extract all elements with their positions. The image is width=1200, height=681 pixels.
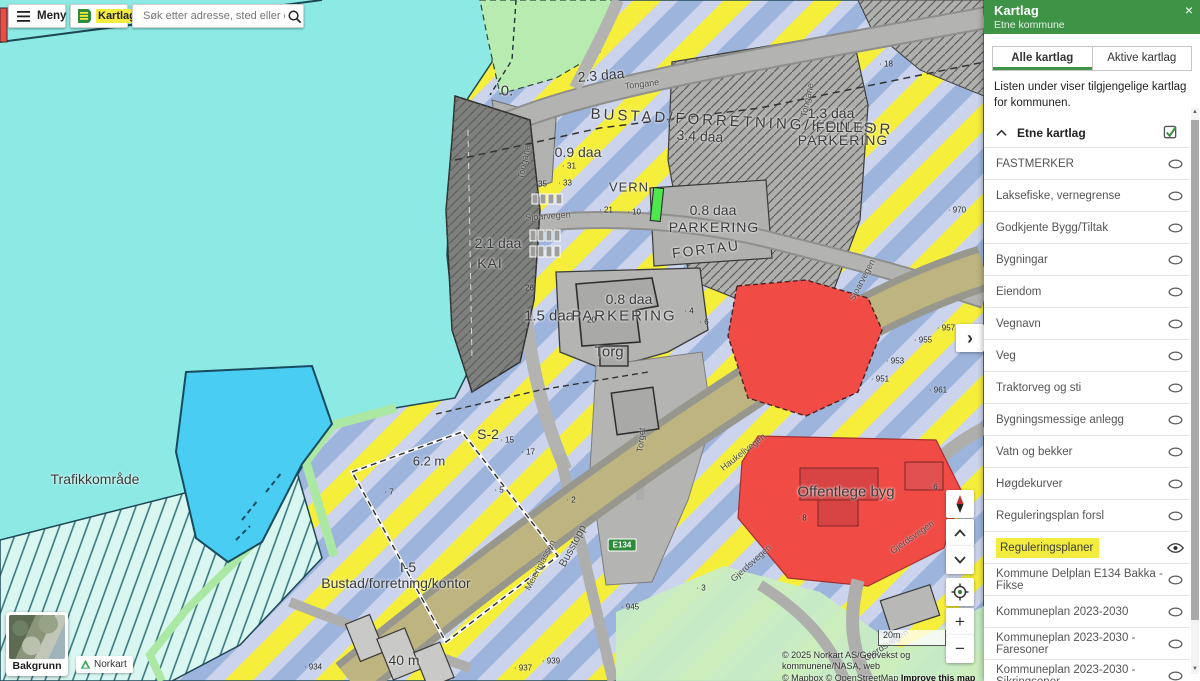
layer-row[interactable]: Kommune Delplan E134 Bakka - Fikse	[984, 563, 1190, 595]
layer-label: Godkjente Bygg/Tiltak	[996, 222, 1108, 234]
pan-down-button[interactable]	[946, 546, 974, 574]
layer-row[interactable]: Eiendom	[984, 275, 1190, 307]
panel-tabs: Alle kartlag Aktive kartlag	[992, 46, 1192, 71]
layer-row[interactable]: FASTMERKER	[984, 147, 1190, 179]
layer-label: Reguleringsplan forsl	[996, 510, 1104, 522]
group-checkbox-icon[interactable]	[1163, 125, 1178, 140]
kartlag-panel: Kartlag Etne kommune × Alle kartlag Akti…	[984, 0, 1200, 681]
layer-label: Høgdekurver	[996, 478, 1062, 490]
layer-label: Bygningsmessige anlegg	[996, 414, 1124, 426]
eye-toggle-icon[interactable]	[1167, 542, 1184, 554]
layer-row[interactable]: Laksefiske, vernegrense	[984, 179, 1190, 211]
layer-label: Kommune Delplan E134 Bakka - Fikse	[996, 568, 1167, 592]
hamburger-icon	[17, 11, 30, 22]
map-svg	[0, 0, 984, 681]
chevron-down-icon	[954, 556, 966, 564]
layer-label: Reguleringsplaner	[996, 538, 1099, 558]
menu-label: Meny	[37, 10, 66, 22]
layer-row[interactable]: Vegnavn	[984, 307, 1190, 339]
improve-map-link[interactable]: Improve this map	[901, 673, 976, 681]
layer-label: Kommuneplan 2023-2030	[996, 606, 1128, 618]
layer-row[interactable]: Godkjente Bygg/Tiltak	[984, 211, 1190, 243]
layer-label: FASTMERKER	[996, 158, 1074, 170]
layer-row[interactable]: Høgdekurver	[984, 467, 1190, 499]
norkart-attribution-chip[interactable]: Norkart	[76, 656, 133, 673]
eye-toggle-icon[interactable]	[1167, 222, 1184, 234]
panel-header: Kartlag Etne kommune ×	[984, 0, 1200, 34]
eye-toggle-icon[interactable]	[1167, 190, 1184, 202]
map-attribution: © 2025 Norkart AS/Geovekst og kommunene/…	[782, 650, 982, 681]
eye-toggle-icon[interactable]	[1167, 574, 1184, 586]
scale-label: 20m	[883, 630, 901, 640]
background-label: Bakgrunn	[6, 660, 68, 672]
eye-toggle-icon[interactable]	[1167, 638, 1184, 650]
search-box[interactable]	[132, 4, 304, 28]
layer-list: FASTMERKER Laksefiske, vernegrense	[984, 147, 1190, 681]
map-canvas[interactable]: 0.2.3 daa0.9 daaBUSTAD/FORRETNING/KONTOR…	[0, 0, 984, 681]
attribution-line1: © 2025 Norkart AS/Geovekst og kommunene/…	[782, 650, 910, 671]
eye-toggle-icon[interactable]	[1167, 350, 1184, 362]
eye-toggle-icon[interactable]	[1167, 382, 1184, 394]
zoom-in-button[interactable]: +	[946, 608, 974, 636]
layer-label: Bygningar	[996, 254, 1048, 266]
eye-toggle-icon[interactable]	[1167, 510, 1184, 522]
attribution-line2: © Mapbox © OpenStreetMap	[782, 673, 901, 681]
layer-label: Vatn og bekker	[996, 446, 1073, 458]
background-thumbnail	[9, 615, 65, 659]
layer-label: Veg	[996, 350, 1016, 362]
layer-row[interactable]: Reguleringsplan forsl	[984, 499, 1190, 531]
layer-label: Eiendom	[996, 286, 1041, 298]
panel-scrollbar-thumb[interactable]	[1191, 120, 1199, 620]
panel-tab[interactable]: Aktive kartlag	[1092, 47, 1192, 70]
layer-row[interactable]: Kommuneplan 2023-2030	[984, 595, 1190, 627]
norkart-logo-icon	[76, 8, 92, 24]
chevron-up-icon	[954, 529, 966, 537]
panel-title: Kartlag	[994, 3, 1190, 19]
menu-button[interactable]: Meny	[8, 4, 66, 28]
panel-subtitle: Etne kommune	[994, 19, 1190, 31]
scroll-down-arrow-icon[interactable]: ▼	[1191, 666, 1199, 672]
layer-label: Laksefiske, vernegrense	[996, 190, 1121, 202]
scroll-up-arrow-icon[interactable]: ▲	[1191, 109, 1199, 115]
background-map-switcher[interactable]: Bakgrunn	[6, 612, 68, 676]
layer-label: Traktorveg og sti	[996, 382, 1081, 394]
compass-needle-icon	[953, 494, 967, 514]
pan-up-button[interactable]	[946, 519, 974, 547]
locate-icon	[951, 583, 969, 601]
eye-toggle-icon[interactable]	[1167, 158, 1184, 170]
chevron-up-icon	[996, 129, 1007, 137]
app-window: 0.2.3 daa0.9 daaBUSTAD/FORRETNING/KONTOR…	[0, 0, 1200, 681]
eye-toggle-icon[interactable]	[1167, 478, 1184, 490]
close-icon[interactable]: ×	[1185, 3, 1193, 17]
layer-row[interactable]: Traktorveg og sti	[984, 371, 1190, 403]
eye-toggle-icon[interactable]	[1167, 286, 1184, 298]
layer-label: Kommuneplan 2023-2030 - Sikringsoner	[996, 664, 1167, 681]
eye-toggle-icon[interactable]	[1167, 414, 1184, 426]
layer-row[interactable]: Vatn og bekker	[984, 435, 1190, 467]
panel-expand-button[interactable]: ›	[956, 324, 984, 352]
layer-row[interactable]: Kommuneplan 2023-2030 - Faresoner	[984, 627, 1190, 659]
eye-toggle-icon[interactable]	[1167, 446, 1184, 458]
layer-label: Vegnavn	[996, 318, 1041, 330]
scale-bar: 20m	[878, 630, 946, 646]
panel-tab[interactable]: Alle kartlag	[993, 47, 1092, 70]
norkart-label: Norkart	[94, 659, 127, 670]
layer-row[interactable]: Veg	[984, 339, 1190, 371]
layer-row[interactable]: Bygningsmessige anlegg	[984, 403, 1190, 435]
kartlag-button[interactable]: Kartlag	[70, 4, 128, 28]
layer-row[interactable]: Kommuneplan 2023-2030 - Sikringsoner	[984, 659, 1190, 681]
layer-label: Kommuneplan 2023-2030 - Faresoner	[996, 632, 1167, 656]
group-label: Etne kartlag	[1017, 126, 1086, 140]
eye-toggle-icon[interactable]	[1167, 670, 1184, 681]
group-row-etne-kartlag[interactable]: Etne kartlag	[984, 118, 1200, 147]
locate-me-button[interactable]	[946, 578, 974, 606]
layer-row[interactable]: Reguleringsplaner	[984, 531, 1190, 563]
search-input[interactable]	[141, 9, 287, 23]
layer-row[interactable]: Bygningar	[984, 243, 1190, 275]
search-icon[interactable]	[287, 9, 302, 24]
eye-toggle-icon[interactable]	[1167, 254, 1184, 266]
eye-toggle-icon[interactable]	[1167, 318, 1184, 330]
norkart-triangle-icon	[80, 659, 91, 670]
compass-button[interactable]	[946, 490, 974, 518]
panel-description: Listen under viser tilgjengelige kartlag…	[984, 71, 1200, 118]
eye-toggle-icon[interactable]	[1167, 606, 1184, 618]
